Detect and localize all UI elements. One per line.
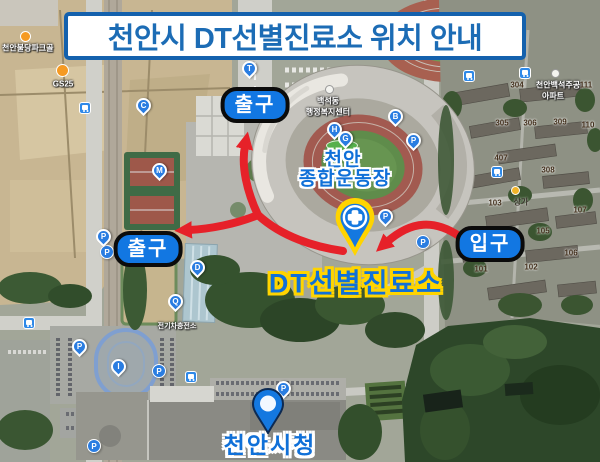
bus-stop-icon (491, 166, 503, 178)
poi-dong-office-line2: 행정복지센터 (306, 107, 350, 118)
poi-park-golf-label: 천안불당파크골 (2, 43, 54, 54)
poi-dong-office-line1: 백석동 (317, 96, 339, 107)
shops-icon (511, 186, 520, 195)
building-number: 110 (582, 121, 595, 130)
title-banner: 천안시 DT선별진료소 위치 안내 (64, 12, 526, 60)
building-number: 304 (510, 81, 523, 90)
forest (402, 318, 600, 462)
location-guide-poster: 천안불당파크골 GS25 백석동 행정복지센터 천안백석주공 아파트 상가 전기… (0, 0, 600, 462)
parking-badge: P (416, 235, 430, 249)
building-number: 102 (524, 263, 537, 272)
exit-top-label: 출구 (221, 87, 290, 123)
building-number: 107 (573, 206, 586, 215)
public-building-icon (551, 69, 560, 78)
parking-badge: P (152, 364, 166, 378)
public-building-icon (325, 85, 334, 94)
building-number: 103 (488, 199, 501, 208)
bus-stop-icon (463, 70, 475, 82)
parking-badge: P (87, 439, 101, 453)
city-hall-pin-icon (252, 388, 284, 434)
bus-stop-icon (23, 317, 35, 329)
building-number: 105 (536, 227, 549, 236)
clinic-name-label: DT선별진료소 (269, 262, 443, 301)
poi-apartment-line1: 천안백석주공 (536, 80, 580, 91)
poi-gs25-label: GS25 (53, 80, 73, 89)
bus-stop-icon (185, 371, 197, 383)
bus-stop-icon (79, 102, 91, 114)
stadium-name-line2: 종합운동장 (299, 164, 391, 191)
poi-ev-charging-label: 전기차충전소 (158, 321, 197, 331)
building-number: 306 (523, 119, 536, 128)
exit-left-label: 출구 (114, 231, 183, 267)
parking-badge: P (100, 245, 114, 259)
page-title: 천안시 DT선별진료소 위치 안내 (108, 15, 483, 57)
building-number: 308 (541, 166, 554, 175)
building-number: 407 (494, 154, 507, 163)
bus-stop-icon (519, 67, 531, 79)
building-number: 111 (580, 81, 592, 90)
clinic-pin-icon (334, 197, 376, 257)
building-number: 309 (553, 118, 566, 127)
poi-apartment-line2: 아파트 (542, 91, 564, 102)
building-number: 101 (474, 265, 487, 274)
entrance-label: 입구 (456, 226, 525, 262)
building-number: 106 (564, 249, 577, 258)
gs25-store-icon (56, 64, 69, 77)
poi-shops-label: 상가 (514, 197, 529, 208)
building-number: 305 (495, 119, 508, 128)
store-icon (20, 31, 31, 42)
